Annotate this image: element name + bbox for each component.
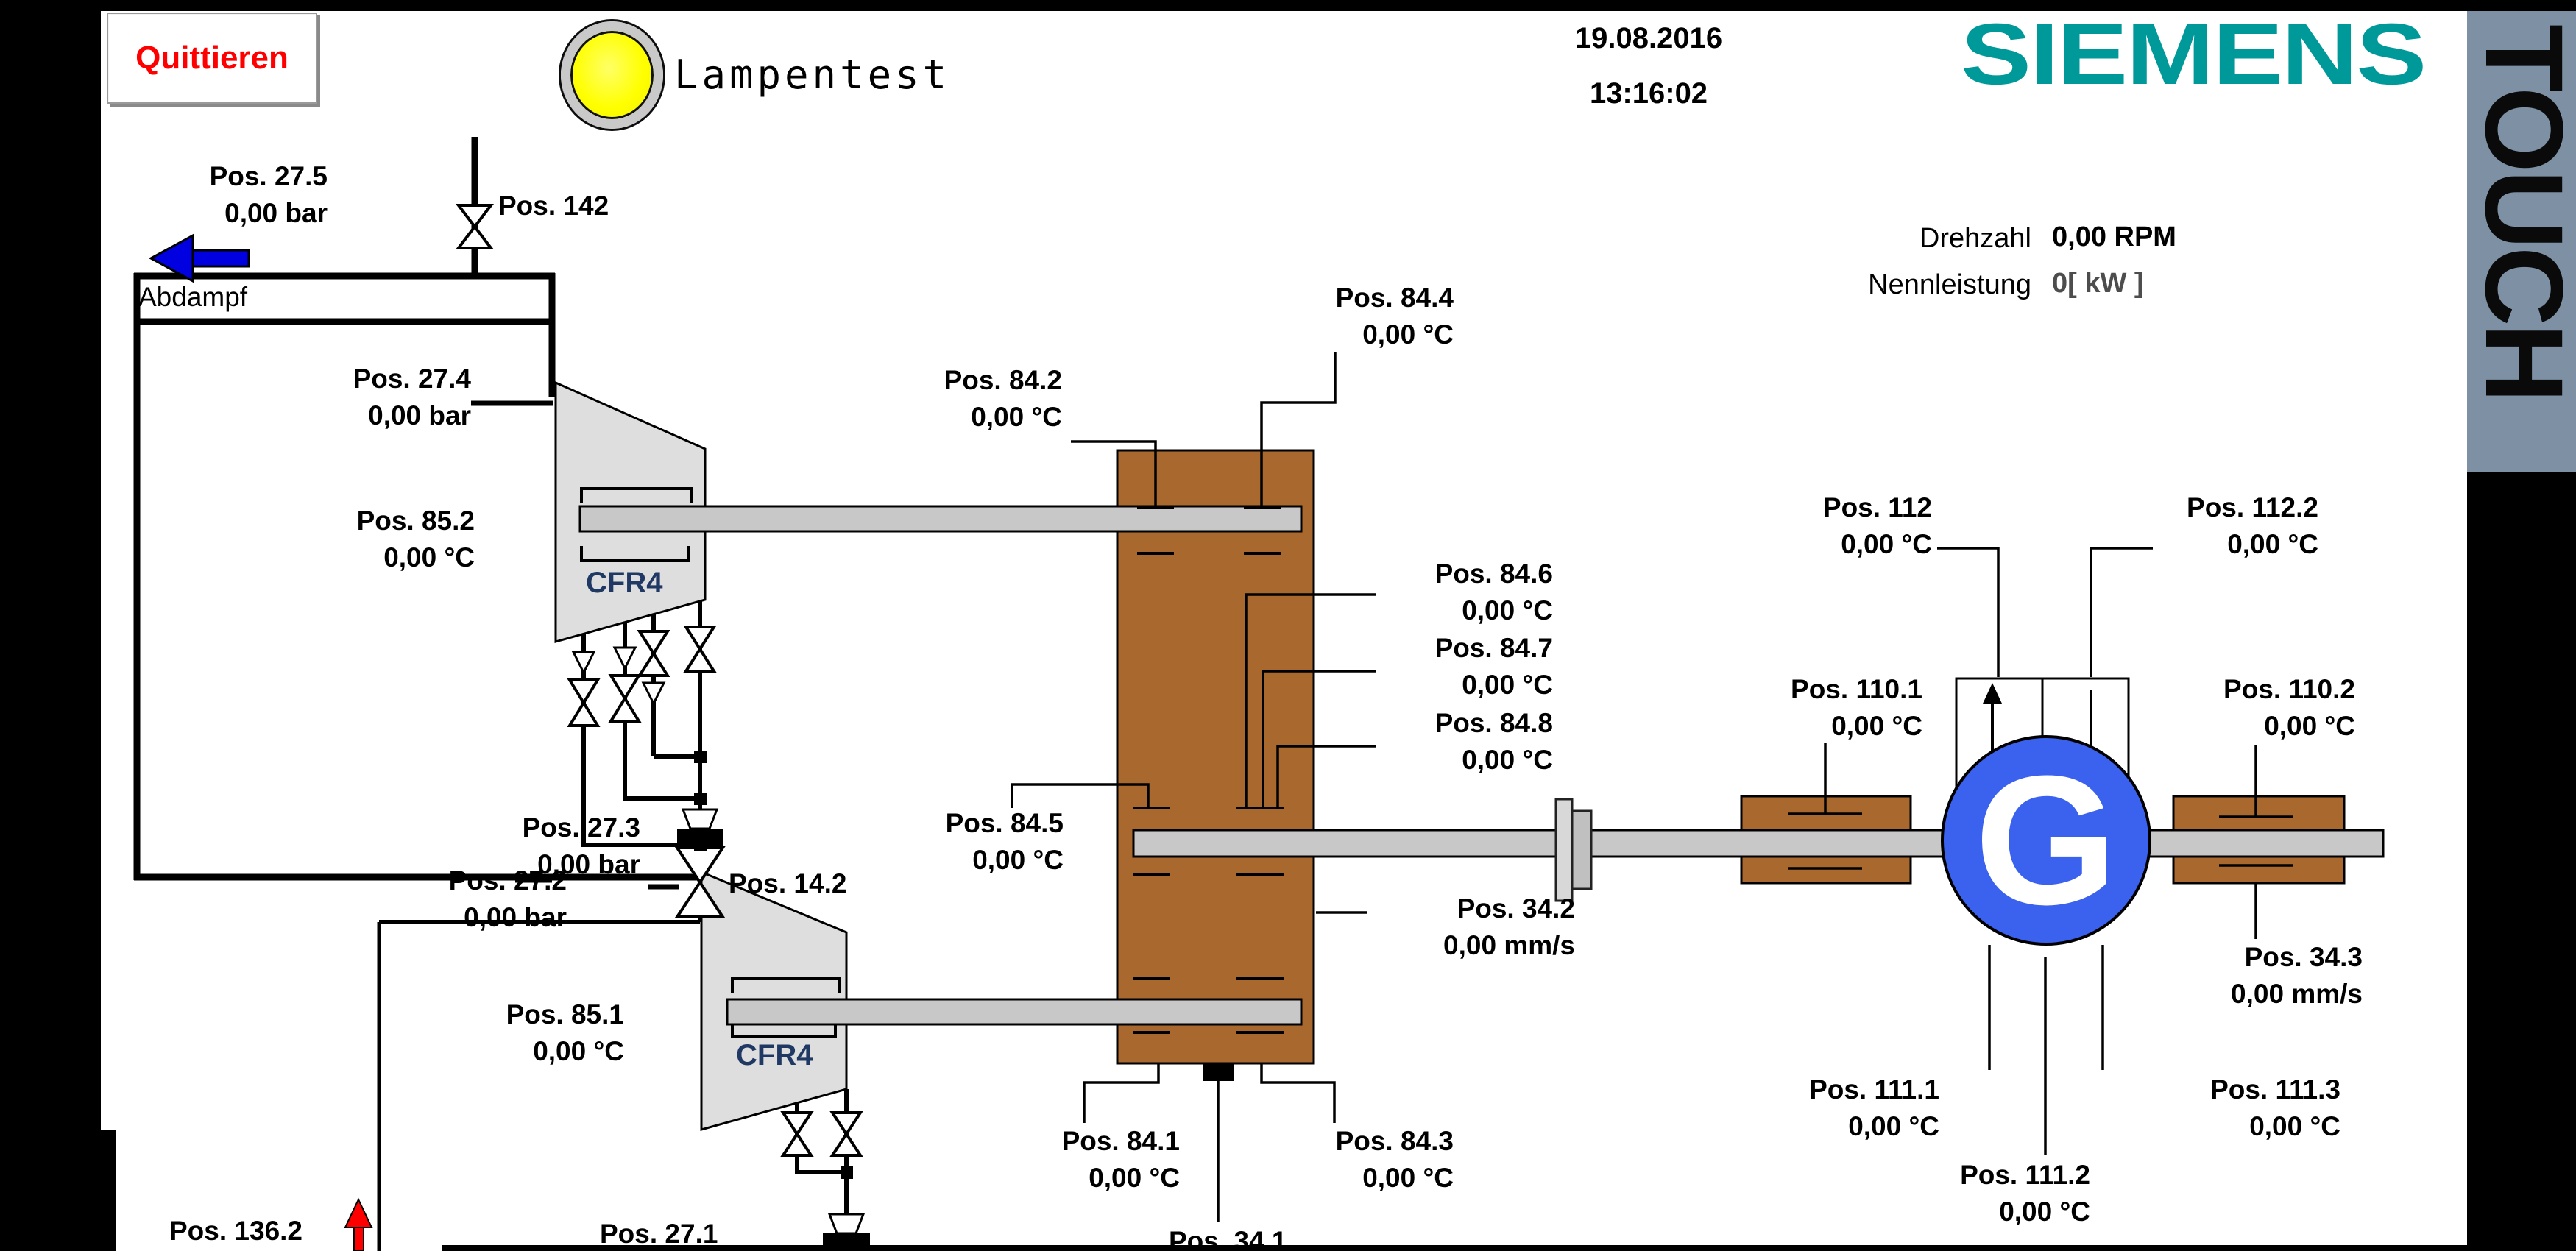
meas-pos34-2: Pos. 34.2 0,00 mm/s <box>1369 890 1575 964</box>
coupling-hub <box>1572 811 1591 889</box>
meas-pos84-7: Pos. 84.7 0,00 °C <box>1354 630 1553 704</box>
process-diagram <box>0 0 2576 1251</box>
meas-pos112-2: Pos. 112.2 0,00 °C <box>2120 489 2318 563</box>
lamp-test-indicator[interactable] <box>561 21 663 129</box>
meas-pos111-3: Pos. 111.3 0,00 °C <box>2138 1071 2340 1145</box>
datetime-display: 19.08.2016 13:16:02 <box>1531 22 1766 110</box>
rated-power-label: Nennleistung <box>1825 269 2031 301</box>
meas-pos85-2: Pos. 85.2 0,00 °C <box>276 503 475 576</box>
meas-pos84-5: Pos. 84.5 0,00 °C <box>865 805 1064 879</box>
meas-pos112: Pos. 112 0,00 °C <box>1733 489 1932 563</box>
meas-pos142: Pos. 142 <box>498 188 609 224</box>
drain-pipes-turbine2 <box>797 1089 846 1233</box>
generator-letter: G <box>1964 752 2129 929</box>
flange-valve-pos14-2 <box>677 809 723 846</box>
meas-pos27-2: Pos. 27.2 0,00 bar <box>353 862 567 936</box>
left-frame-bar <box>0 0 101 1251</box>
meas-pos34-1: Pos. 34.1 <box>1169 1223 1287 1251</box>
cfr4-label-lower: CFR4 <box>736 1039 813 1072</box>
bottom-left-frame-block <box>0 1130 116 1251</box>
coupling-disc <box>1556 799 1572 901</box>
meas-pos110-2: Pos. 110.2 0,00 °C <box>2156 671 2355 745</box>
gearbox <box>1117 450 1314 1063</box>
meas-pos27-1: Pos. 27.1 <box>600 1216 718 1251</box>
meas-pos14-2: Pos. 14.2 <box>729 865 846 902</box>
rated-power-value: 0[ kW ] <box>2052 268 2144 300</box>
meas-pos84-3: Pos. 84.3 0,00 °C <box>1255 1123 1454 1197</box>
time-value: 13:16:02 <box>1531 77 1766 110</box>
meas-pos111-2: Pos. 111.2 0,00 °C <box>1888 1157 2090 1230</box>
shaft-turbine1 <box>580 506 1301 531</box>
bottom-frame-bar <box>442 1245 2467 1251</box>
meas-pos84-8: Pos. 84.8 0,00 °C <box>1354 705 1553 779</box>
right-frame-bar <box>2467 472 2576 1251</box>
meas-pos111-1: Pos. 111.1 0,00 °C <box>1737 1071 1939 1145</box>
meas-pos84-1: Pos. 84.1 0,00 °C <box>981 1123 1180 1197</box>
hmi-screen: TOUCH Quittieren Lampentest 19.08.2016 1… <box>0 0 2576 1251</box>
meas-pos34-3: Pos. 34.3 0,00 mm/s <box>2156 939 2363 1013</box>
valve-pos142-icon <box>459 205 491 248</box>
meas-pos84-4: Pos. 84.4 0,00 °C <box>1255 280 1454 353</box>
gearbox-drain <box>1203 1063 1234 1081</box>
speed-label: Drehzahl <box>1825 223 2031 255</box>
meas-pos85-1: Pos. 85.1 0,00 °C <box>425 996 624 1070</box>
meas-pos84-6: Pos. 84.6 0,00 °C <box>1354 556 1553 629</box>
acknowledge-button[interactable]: Quittieren <box>107 13 317 104</box>
shaft-turbine2 <box>727 999 1301 1024</box>
meas-pos110-1: Pos. 110.1 0,00 °C <box>1724 671 1922 745</box>
speed-value: 0,00 RPM <box>2052 222 2176 253</box>
siemens-logo: SIEMENS <box>1961 13 2562 102</box>
date-value: 19.08.2016 <box>1531 22 1766 55</box>
meas-pos27-5: Pos. 27.5 0,00 bar <box>129 158 328 232</box>
flange-valve-pos27-1 <box>823 1214 870 1250</box>
lamp-test-label: Lampentest <box>674 52 1042 98</box>
cfr4-label-upper: CFR4 <box>586 567 662 600</box>
shaft-main <box>1133 830 2383 857</box>
abdampf-label: Abdampf <box>138 282 247 313</box>
meas-pos84-2: Pos. 84.2 0,00 °C <box>863 362 1062 436</box>
meas-pos27-4: Pos. 27.4 0,00 bar <box>272 361 471 434</box>
meas-pos136-2: Pos. 136.2 <box>169 1213 302 1250</box>
pos136-2-arrow-icon <box>345 1199 372 1251</box>
